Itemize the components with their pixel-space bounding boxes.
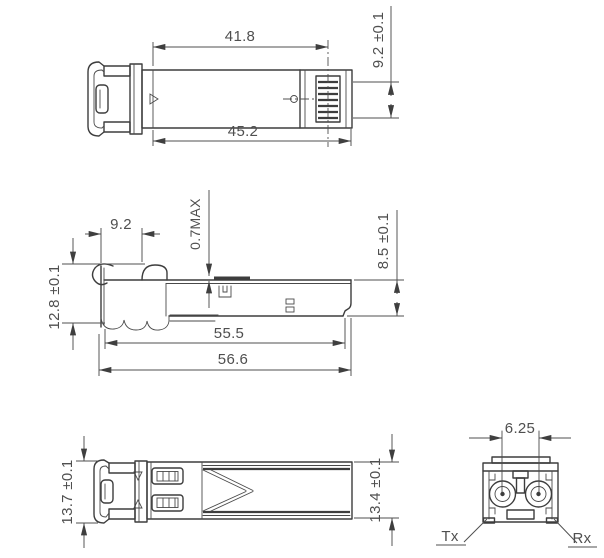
- dim-13-4-tol-label: 13.4 ±0.1: [367, 457, 384, 522]
- dim-13-7-tol-label: 13.7 ±0.1: [59, 459, 76, 524]
- tx-bore: [490, 481, 516, 507]
- bail-latch-side: [93, 264, 219, 330]
- tx-callout: Tx: [436, 519, 487, 545]
- sfp-mechanical-drawing: 41.8 45.2 9.2 ±0.1: [0, 0, 604, 558]
- chevron-detail: [203, 470, 253, 511]
- rx-label: Rx: [573, 530, 592, 547]
- orientation-arrow-icon: [150, 94, 158, 104]
- dim-9-2: 9.2: [85, 216, 160, 263]
- bottom-key: [507, 510, 534, 519]
- dim-6-25: 6.25: [469, 420, 571, 492]
- top-view: 41.8 45.2 9.2 ±0.1: [88, 6, 399, 147]
- dim-8-5-tol-label: 8.5 ±0.1: [375, 213, 392, 270]
- rear-edge: [343, 280, 351, 316]
- dim-55-5: 55.5: [105, 318, 345, 349]
- dim-12-8-tol: 12.8 ±0.1: [46, 238, 145, 350]
- top-tab: [492, 457, 550, 463]
- rx-callout: Rx: [554, 519, 597, 547]
- side-view: 9.2 0.7MAX 12.8 ±0.1 8.5 ±0.1: [46, 190, 404, 376]
- dim-9-2-label: 9.2: [110, 216, 132, 233]
- clip-detail: [219, 286, 231, 297]
- dim-56-6-label: 56.6: [218, 351, 248, 368]
- dim-41-8: 41.8: [153, 28, 328, 66]
- center-key: [513, 471, 528, 478]
- bail-latch-top: [88, 62, 142, 136]
- dim-13-7-tol: 13.7 ±0.1: [59, 436, 98, 548]
- lc-clip-lower: [152, 495, 183, 511]
- dim-0-7-max-label: 0.7MAX: [187, 198, 203, 250]
- dim-55-5-label: 55.5: [214, 325, 244, 342]
- dim-45-2: 45.2: [153, 123, 351, 146]
- dim-0-7-max: 0.7MAX: [187, 190, 209, 308]
- front-view: 6.25 Tx Rx: [436, 420, 597, 547]
- bottom-view: 13.7 ±0.1 13.4 ±0.1: [59, 434, 399, 548]
- rx-bore: [526, 481, 552, 507]
- emi-gasket: [101, 316, 169, 330]
- latch-boss: [142, 265, 167, 280]
- dim-9-2-tol-label: 9.2 ±0.1: [370, 12, 387, 69]
- pad-detail: [286, 307, 294, 312]
- dim-8-5-tol: 8.5 ±0.1: [347, 210, 404, 316]
- dim-45-2-label: 45.2: [228, 123, 258, 140]
- dim-12-8-tol-label: 12.8 ±0.1: [46, 264, 63, 329]
- pad-detail: [286, 299, 294, 304]
- dim-6-25-label: 6.25: [505, 420, 535, 437]
- dim-13-4-tol: 13.4 ±0.1: [354, 434, 399, 546]
- lc-clip-upper: [152, 468, 183, 484]
- bail-latch-bottom: [94, 460, 147, 523]
- dim-9-2-tol: 9.2 ±0.1: [353, 6, 399, 118]
- top-tab: [214, 277, 250, 281]
- drawing-canvas: 41.8 45.2 9.2 ±0.1: [0, 0, 604, 558]
- tx-label: Tx: [441, 528, 458, 545]
- dim-41-8-label: 41.8: [225, 28, 255, 45]
